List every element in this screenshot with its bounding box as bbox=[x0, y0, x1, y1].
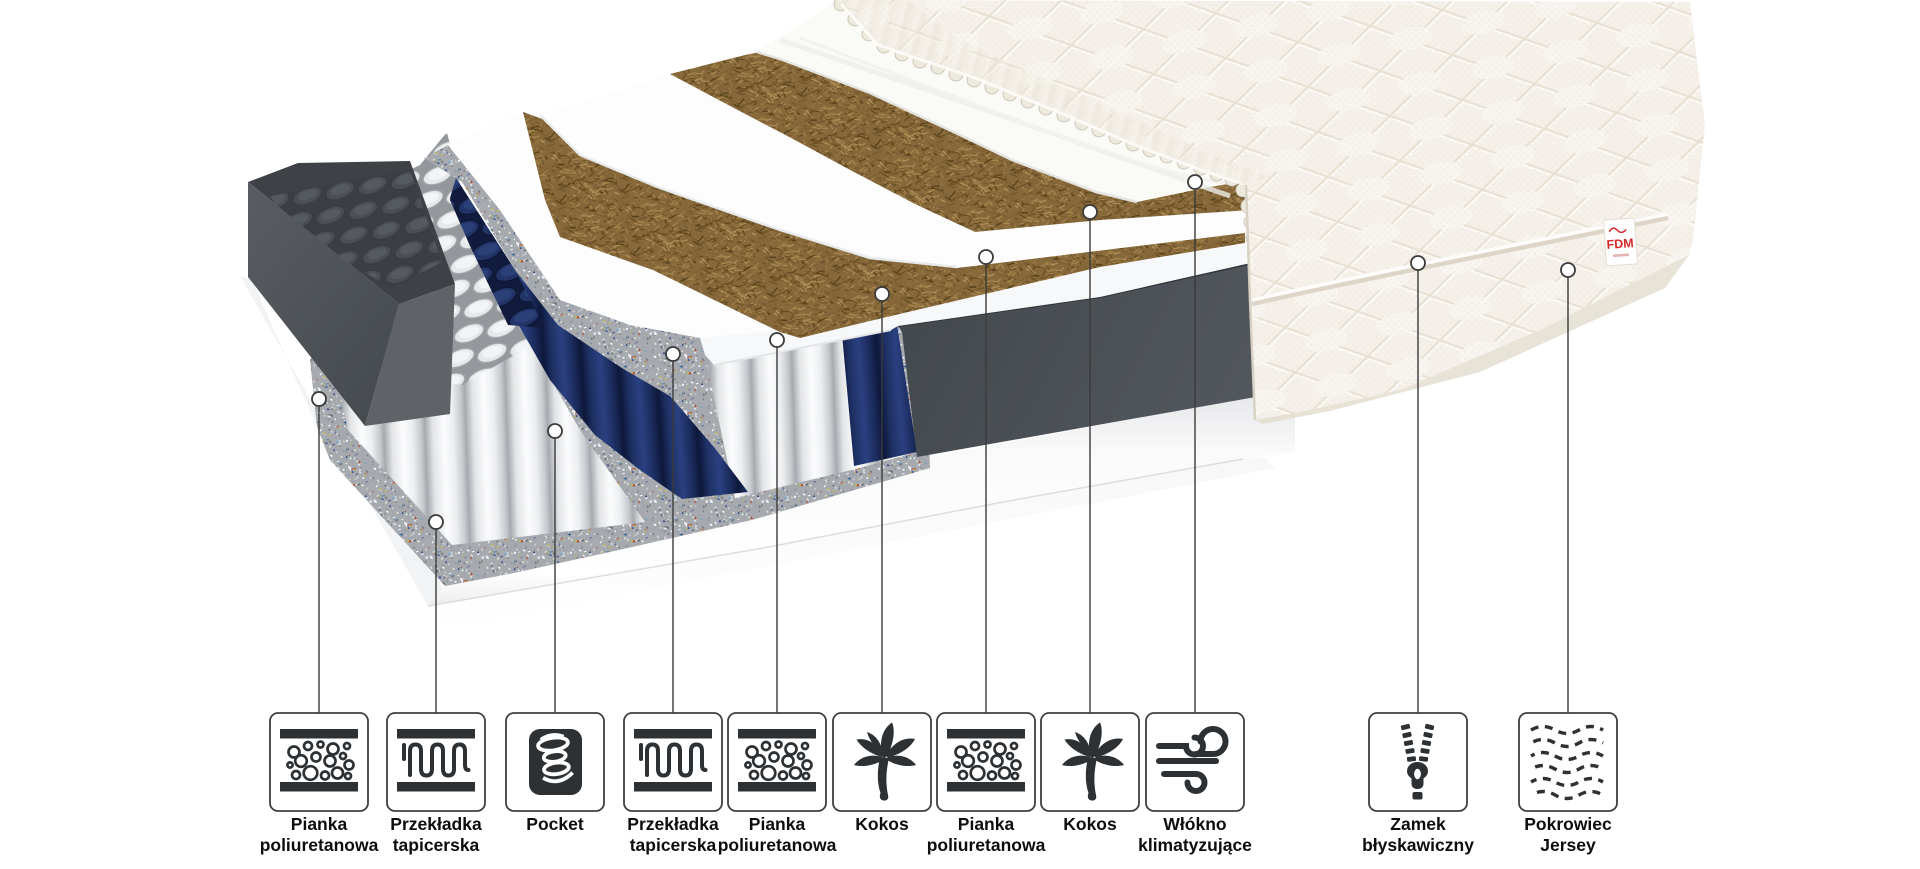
svg-text:Jersey: Jersey bbox=[1540, 835, 1596, 855]
svg-text:poliuretanowa: poliuretanowa bbox=[927, 835, 1046, 855]
svg-text:Kokos: Kokos bbox=[1063, 814, 1117, 834]
svg-text:Kokos: Kokos bbox=[855, 814, 909, 834]
svg-text:tapicerska: tapicerska bbox=[630, 835, 717, 855]
svg-text:poliuretanowa: poliuretanowa bbox=[260, 835, 379, 855]
svg-text:Włókno: Włókno bbox=[1163, 814, 1226, 834]
svg-text:Pianka: Pianka bbox=[749, 814, 806, 834]
svg-text:Pianka: Pianka bbox=[291, 814, 348, 834]
svg-text:Pianka: Pianka bbox=[958, 814, 1015, 834]
svg-text:Zamek: Zamek bbox=[1390, 814, 1446, 834]
svg-text:Przekładka: Przekładka bbox=[390, 814, 482, 834]
svg-text:tapicerska: tapicerska bbox=[393, 835, 480, 855]
svg-text:Przekładka: Przekładka bbox=[627, 814, 719, 834]
svg-text:poliuretanowa: poliuretanowa bbox=[718, 835, 837, 855]
svg-text:FDM: FDM bbox=[1606, 236, 1634, 252]
svg-text:błyskawiczny: błyskawiczny bbox=[1362, 835, 1474, 855]
svg-text:Pokrowiec: Pokrowiec bbox=[1524, 814, 1612, 834]
svg-text:Pocket: Pocket bbox=[526, 814, 584, 834]
svg-text:klimatyzujące: klimatyzujące bbox=[1138, 835, 1252, 855]
